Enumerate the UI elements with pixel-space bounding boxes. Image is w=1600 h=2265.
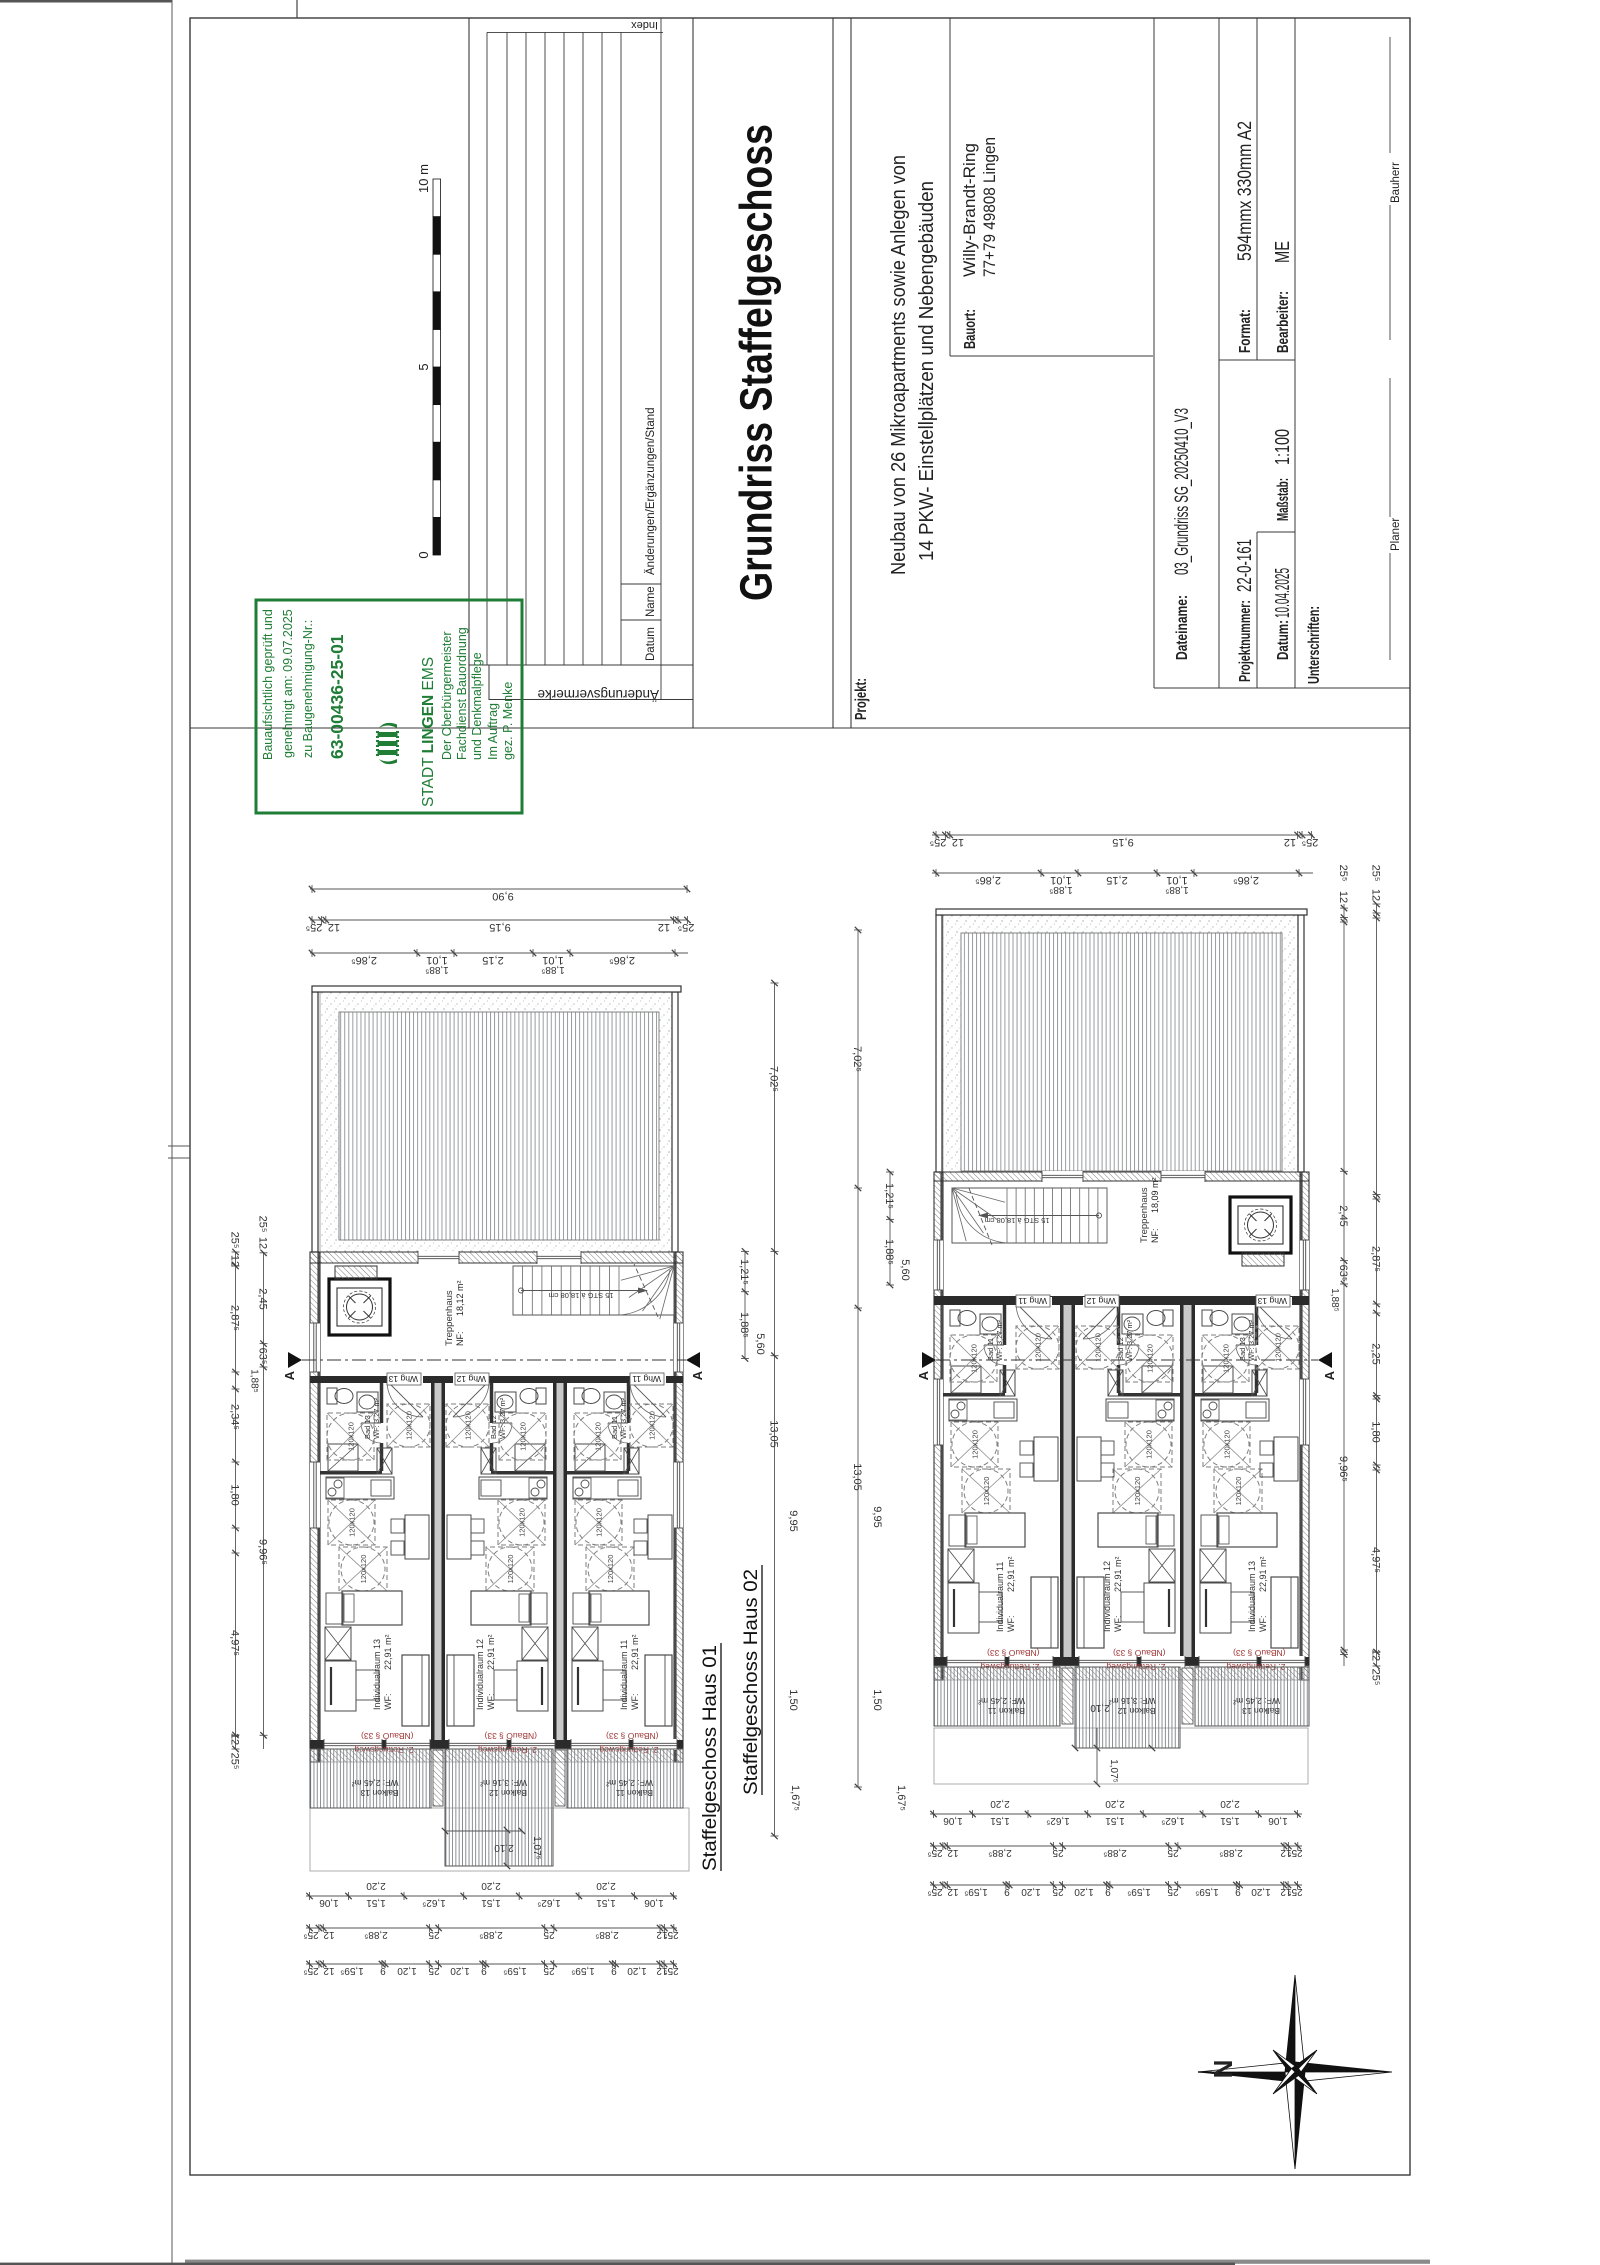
svg-text:WF: 3,16 m²: WF: 3,16 m²	[480, 1778, 527, 1788]
svg-text:Projektnummer:: Projektnummer:	[1237, 600, 1254, 682]
svg-text:120x120: 120x120	[506, 1555, 515, 1584]
svg-text:1,20: 1,20	[1021, 1886, 1041, 1897]
svg-text:2,20: 2,20	[596, 1880, 616, 1891]
svg-text:25: 25	[1052, 1886, 1064, 1897]
svg-text:WF:: WF:	[1258, 1616, 1268, 1633]
svg-text:Treppenhaus: Treppenhaus	[444, 1290, 455, 1346]
svg-text:25: 25	[1052, 1847, 1064, 1858]
svg-text:5: 5	[416, 363, 431, 370]
svg-text:1,59⁵: 1,59⁵	[503, 1965, 527, 1976]
svg-text:120x120: 120x120	[359, 1555, 368, 1584]
svg-text:Projekt:: Projekt:	[853, 678, 870, 720]
svg-text:Bad 11: Bad 11	[986, 1338, 995, 1361]
svg-text:25⁵: 25⁵	[930, 836, 947, 848]
svg-text:Bad 13: Bad 13	[363, 1415, 372, 1439]
svg-text:12: 12	[229, 1255, 241, 1267]
svg-text:1,51: 1,51	[596, 1897, 616, 1908]
svg-text:7,02⁵: 7,02⁵	[768, 1066, 780, 1092]
svg-text:1,06: 1,06	[644, 1897, 664, 1908]
svg-text:Individualraum 12: Individualraum 12	[1102, 1561, 1112, 1632]
svg-text:2,34⁵: 2,34⁵	[229, 1404, 241, 1430]
svg-text:120x120: 120x120	[1145, 1430, 1154, 1459]
svg-text:Fachdienst Bauordnung: Fachdienst Bauordnung	[455, 627, 469, 760]
svg-text:1,88⁵: 1,88⁵	[425, 964, 449, 975]
svg-text:WF: 3,27 m²: WF: 3,27 m²	[619, 1397, 628, 1439]
svg-text:N: N	[1208, 2060, 1238, 2079]
svg-text:1:100: 1:100	[1272, 429, 1294, 465]
svg-text:25⁵: 25⁵	[1370, 865, 1382, 882]
svg-text:120x120: 120x120	[594, 1422, 603, 1451]
svg-text:Individualraum 11: Individualraum 11	[619, 1640, 629, 1710]
svg-text:12: 12	[658, 921, 670, 933]
svg-text:22,91 m²: 22,91 m²	[486, 1634, 496, 1670]
svg-text:25⁵: 25⁵	[1337, 865, 1349, 882]
svg-text:2,10: 2,10	[494, 1842, 514, 1853]
svg-text:120x120: 120x120	[1133, 1477, 1142, 1506]
svg-text:Bad 12: Bad 12	[1116, 1337, 1125, 1361]
svg-text:25⁵: 25⁵	[678, 921, 695, 933]
svg-text:WF:: WF:	[383, 1694, 393, 1711]
svg-text:2,87⁵: 2,87⁵	[1370, 1246, 1382, 1272]
svg-text:1,51: 1,51	[366, 1897, 386, 1908]
svg-text:2,20: 2,20	[990, 1798, 1010, 1809]
svg-text:2,88⁵: 2,88⁵	[988, 1847, 1012, 1858]
svg-text:9: 9	[611, 1965, 617, 1976]
svg-text:120x120: 120x120	[519, 1422, 528, 1451]
svg-text:12: 12	[947, 1886, 959, 1897]
svg-text:1,06: 1,06	[943, 1815, 963, 1826]
svg-text:1,62⁵: 1,62⁵	[1046, 1815, 1070, 1826]
svg-text:13,05: 13,05	[851, 1463, 863, 1491]
svg-text:Balkon 13: Balkon 13	[1242, 1706, 1280, 1716]
svg-text:63-00436-25-01: 63-00436-25-01	[327, 634, 347, 759]
svg-text:1,20: 1,20	[627, 1965, 647, 1976]
svg-text:2,45: 2,45	[1337, 1205, 1349, 1226]
svg-text:(NBauO § 33): (NBauO § 33)	[606, 1731, 659, 1741]
svg-text:1,67⁵: 1,67⁵	[895, 1785, 907, 1811]
svg-text:1,59⁵: 1,59⁵	[571, 1965, 595, 1976]
svg-text:5,60: 5,60	[899, 1259, 911, 1280]
svg-text:2,88⁵: 2,88⁵	[1103, 1847, 1127, 1858]
svg-text:120x120: 120x120	[518, 1508, 527, 1537]
svg-text:gez. P. Menke: gez. P. Menke	[501, 682, 515, 760]
svg-text:120x120: 120x120	[1234, 1477, 1243, 1506]
svg-text:1,88⁵: 1,88⁵	[1165, 884, 1189, 895]
svg-text:10 m: 10 m	[416, 164, 431, 193]
svg-text:13,05: 13,05	[768, 1420, 780, 1448]
svg-text:Whg 13: Whg 13	[388, 1374, 418, 1384]
svg-text:A: A	[916, 1370, 931, 1380]
svg-text:594mmx 330mm A2: 594mmx 330mm A2	[1235, 121, 1256, 261]
svg-text:Balkon 12: Balkon 12	[489, 1788, 527, 1798]
svg-text:STADT LINGEN EMS: STADT LINGEN EMS	[420, 657, 437, 807]
svg-text:25⁵: 25⁵	[303, 1929, 318, 1940]
svg-text:1,21⁵: 1,21⁵	[738, 1259, 750, 1285]
svg-text:WF: 2,45 m²: WF: 2,45 m²	[1233, 1696, 1280, 1706]
svg-text:1,88⁵: 1,88⁵	[1329, 1288, 1340, 1312]
svg-text:Balkon 13: Balkon 13	[360, 1788, 398, 1798]
svg-text:25: 25	[428, 1929, 440, 1940]
svg-text:Neubau von 26 Mikroapartments: Neubau von 26 Mikroapartments sowie Anle…	[888, 155, 910, 575]
svg-text:Treppenhaus: Treppenhaus	[1139, 1187, 1150, 1243]
svg-text:Balkon 11: Balkon 11	[988, 1706, 1025, 1716]
svg-text:2,86⁵: 2,86⁵	[351, 954, 377, 966]
svg-text:9,15: 9,15	[489, 921, 510, 933]
svg-text:1,62⁵: 1,62⁵	[537, 1897, 561, 1908]
svg-text:1,20: 1,20	[1251, 1886, 1271, 1897]
svg-text:15 STG à 18,08 cm: 15 STG à 18,08 cm	[548, 1291, 613, 1300]
svg-text:Balkon 12: Balkon 12	[1117, 1706, 1155, 1716]
svg-text:9: 9	[1004, 1886, 1010, 1897]
svg-text:10.04.2025: 10.04.2025	[1272, 568, 1294, 618]
svg-text:12: 12	[323, 1965, 335, 1976]
svg-text:Bad 12: Bad 12	[489, 1415, 498, 1439]
svg-text:9,96⁵: 9,96⁵	[1337, 1456, 1349, 1482]
svg-text:Datum: Datum	[645, 627, 657, 661]
svg-text:63⁵: 63⁵	[1337, 1265, 1349, 1282]
svg-text:WF: 2,45 m²: WF: 2,45 m²	[978, 1696, 1025, 1706]
svg-text:1,67⁵: 1,67⁵	[789, 1785, 801, 1811]
svg-text:WF:: WF:	[630, 1694, 640, 1711]
svg-text:2,15: 2,15	[482, 954, 503, 966]
svg-text:1,88⁵: 1,88⁵	[738, 1312, 750, 1338]
svg-text:25⁵: 25⁵	[1370, 1669, 1382, 1686]
svg-text:1,50: 1,50	[871, 1689, 883, 1710]
svg-text:120x120: 120x120	[1222, 1344, 1231, 1373]
svg-text:25: 25	[543, 1929, 555, 1940]
svg-text:2,88⁵: 2,88⁵	[1219, 1847, 1243, 1858]
svg-text:2,86⁵: 2,86⁵	[975, 874, 1001, 886]
svg-text:Individualraum 13: Individualraum 13	[372, 1639, 382, 1710]
svg-text:(NBauO § 33): (NBauO § 33)	[1233, 1648, 1286, 1658]
svg-text:9: 9	[1105, 1886, 1111, 1897]
svg-text:03_Grundriss SG_20250410_V3: 03_Grundriss SG_20250410_V3	[1172, 408, 1193, 575]
svg-text:22-0-161: 22-0-161	[1234, 539, 1256, 592]
svg-text:WF: 3,16 m²: WF: 3,16 m²	[1109, 1696, 1156, 1706]
svg-text:9,95: 9,95	[787, 1510, 799, 1531]
svg-text:(NBauO § 33): (NBauO § 33)	[987, 1648, 1040, 1658]
svg-text:12: 12	[1284, 836, 1296, 848]
svg-text:WF: 2,45 m²: WF: 2,45 m²	[352, 1778, 399, 1788]
svg-text:12: 12	[229, 1733, 241, 1745]
svg-text:1,59⁵: 1,59⁵	[964, 1886, 988, 1897]
svg-text:25⁵: 25⁵	[1287, 1847, 1302, 1858]
svg-text:25⁵: 25⁵	[303, 1965, 318, 1976]
svg-text:1,88⁵: 1,88⁵	[541, 964, 565, 975]
svg-text:2,10: 2,10	[1090, 1702, 1110, 1713]
svg-text:1,51: 1,51	[481, 1897, 501, 1908]
svg-text:63⁵: 63⁵	[257, 1348, 269, 1365]
svg-text:1,51: 1,51	[1220, 1815, 1240, 1826]
svg-text:9: 9	[380, 1965, 386, 1976]
svg-text:22,91 m²: 22,91 m²	[630, 1634, 640, 1670]
svg-text:25⁵: 25⁵	[1287, 1886, 1302, 1897]
svg-text:Dateiname:: Dateiname:	[1174, 595, 1191, 660]
svg-text:Bauaufsichtlich geprüft und: Bauaufsichtlich geprüft und	[261, 609, 275, 760]
svg-text:9: 9	[1235, 1886, 1241, 1897]
svg-text:12: 12	[1370, 889, 1382, 901]
svg-text:Grundriss Staffelgeschoss: Grundriss Staffelgeschoss	[731, 124, 782, 601]
svg-text:25⁵: 25⁵	[927, 1847, 942, 1858]
svg-text:1,80: 1,80	[1370, 1421, 1382, 1442]
svg-text:2,20: 2,20	[1105, 1798, 1125, 1809]
svg-text:14 PKW- Einstellplätzen und Ne: 14 PKW- Einstellplätzen und Nebengebäude…	[916, 181, 938, 561]
svg-text:WF:: WF:	[1006, 1616, 1016, 1633]
svg-text:(NBauO § 33): (NBauO § 33)	[1113, 1648, 1166, 1658]
svg-text:Format:: Format:	[1237, 309, 1254, 353]
svg-text:Bauherr: Bauherr	[1390, 162, 1402, 203]
svg-text:2,25: 2,25	[1370, 1343, 1382, 1364]
svg-text:1,06: 1,06	[1268, 1815, 1288, 1826]
svg-text:WF:: WF:	[1113, 1616, 1123, 1633]
svg-text:Name: Name	[645, 586, 657, 617]
svg-text:4,97⁵: 4,97⁵	[229, 1630, 241, 1656]
svg-text:120x120: 120x120	[1146, 1344, 1155, 1373]
svg-text:WF: 3,27 m²: WF: 3,27 m²	[1125, 1319, 1134, 1361]
svg-text:Planer: Planer	[1390, 518, 1402, 551]
svg-text:5,60: 5,60	[754, 1333, 766, 1354]
svg-text:12: 12	[947, 1847, 959, 1858]
svg-text:0: 0	[416, 551, 431, 558]
svg-text:12: 12	[323, 1929, 335, 1940]
svg-text:25: 25	[428, 1965, 440, 1976]
svg-text:2,20: 2,20	[1220, 1798, 1240, 1809]
svg-text:WF: 3,27 m²: WF: 3,27 m²	[995, 1319, 1004, 1361]
svg-text:25⁵: 25⁵	[927, 1886, 942, 1897]
svg-text:1,07⁵: 1,07⁵	[531, 1836, 542, 1860]
svg-text:120x120: 120x120	[971, 1430, 980, 1459]
svg-text:120x120: 120x120	[1223, 1430, 1232, 1459]
svg-text:1,59⁵: 1,59⁵	[1195, 1886, 1219, 1897]
svg-text:1,20: 1,20	[1074, 1886, 1094, 1897]
svg-text:25⁵: 25⁵	[663, 1929, 678, 1940]
svg-text:25: 25	[1167, 1886, 1179, 1897]
svg-text:Der Oberbürgermeister: Der Oberbürgermeister	[440, 631, 454, 760]
svg-text:1,20: 1,20	[450, 1965, 470, 1976]
svg-text:1,62⁵: 1,62⁵	[422, 1897, 446, 1908]
svg-text:25: 25	[1167, 1847, 1179, 1858]
svg-text:1,06: 1,06	[319, 1897, 339, 1908]
svg-text:Unterschriften:: Unterschriften:	[1306, 606, 1323, 684]
svg-text:9: 9	[481, 1965, 487, 1976]
svg-text:2,86⁵: 2,86⁵	[609, 954, 635, 966]
svg-text:1,07⁵: 1,07⁵	[1108, 1759, 1119, 1783]
svg-text:WF: 2,45 m²: WF: 2,45 m²	[606, 1778, 653, 1788]
svg-text:9,95: 9,95	[871, 1506, 883, 1527]
svg-text:25⁵: 25⁵	[306, 921, 323, 933]
svg-text:12: 12	[1370, 1649, 1382, 1661]
svg-text:Maßstab:: Maßstab:	[1275, 478, 1292, 521]
svg-text:120x120: 120x120	[970, 1344, 979, 1373]
svg-text:1,51: 1,51	[990, 1815, 1010, 1826]
svg-text:18,12 m²: 18,12 m²	[455, 1280, 465, 1316]
svg-text:9,15: 9,15	[1112, 836, 1133, 848]
svg-text:9,96⁵: 9,96⁵	[257, 1539, 269, 1565]
svg-text:WF:: WF:	[486, 1694, 496, 1711]
svg-text:1,50: 1,50	[787, 1689, 799, 1710]
svg-text:1,62⁵: 1,62⁵	[1161, 1815, 1185, 1826]
svg-text:WF: 3,27 m²: WF: 3,27 m²	[498, 1397, 507, 1439]
svg-text:120x120: 120x120	[606, 1555, 615, 1584]
svg-text:1,21⁵: 1,21⁵	[883, 1183, 895, 1209]
svg-text:25⁵: 25⁵	[229, 1232, 241, 1249]
svg-text:Datum:: Datum:	[1275, 620, 1292, 660]
svg-text:2,87⁵: 2,87⁵	[229, 1305, 241, 1331]
svg-text:A: A	[1322, 1370, 1337, 1380]
svg-text:1,88⁵: 1,88⁵	[249, 1369, 260, 1393]
svg-text:Willy-Brandt-Ring: Willy-Brandt-Ring	[960, 143, 979, 277]
svg-text:1,20: 1,20	[397, 1965, 417, 1976]
svg-text:25⁵: 25⁵	[257, 1216, 269, 1233]
svg-text:15 STG à 18,08 cm: 15 STG à 18,08 cm	[984, 1216, 1049, 1225]
svg-text:ME: ME	[1272, 241, 1294, 263]
svg-text:Balkon 11: Balkon 11	[616, 1788, 653, 1798]
svg-text:Staffelgeschoss Haus 02: Staffelgeschoss Haus 02	[740, 1569, 762, 1795]
svg-text:(NBauO § 33): (NBauO § 33)	[484, 1731, 537, 1741]
svg-text:Bad 13: Bad 13	[1238, 1337, 1247, 1361]
svg-text:2,88⁵: 2,88⁵	[364, 1929, 388, 1940]
svg-text:22,91 m²: 22,91 m²	[1113, 1556, 1123, 1592]
svg-text:9,90: 9,90	[492, 890, 513, 902]
svg-text:Whg 11: Whg 11	[632, 1374, 661, 1384]
svg-text:WF: 3,27 m²: WF: 3,27 m²	[1247, 1319, 1256, 1361]
svg-text:A: A	[690, 1370, 705, 1380]
svg-text:genehmigt am: 09.07.2025: genehmigt am: 09.07.2025	[281, 609, 295, 758]
svg-text:25: 25	[543, 1965, 555, 1976]
svg-text:Individualraum 13: Individualraum 13	[1247, 1561, 1257, 1632]
svg-text:25⁵: 25⁵	[229, 1753, 241, 1770]
svg-text:Im Auftrag: Im Auftrag	[486, 703, 500, 760]
svg-text:und Denkmalpflege: und Denkmalpflege	[470, 652, 484, 760]
svg-text:2,20: 2,20	[366, 1880, 386, 1891]
svg-text:Bauort:: Bauort:	[962, 309, 979, 349]
svg-text:Individualraum 12: Individualraum 12	[475, 1639, 485, 1710]
svg-text:120x120: 120x120	[347, 1422, 356, 1451]
svg-text:120x120: 120x120	[982, 1477, 991, 1506]
svg-text:Whg 13: Whg 13	[1257, 1296, 1287, 1306]
svg-text:2,88⁵: 2,88⁵	[595, 1929, 619, 1940]
svg-text:120x120: 120x120	[348, 1508, 357, 1537]
svg-text:25⁵: 25⁵	[1302, 836, 1319, 848]
svg-text:12: 12	[952, 836, 964, 848]
svg-text:NF:: NF:	[1150, 1229, 1160, 1244]
svg-text:1,59⁵: 1,59⁵	[340, 1965, 364, 1976]
svg-text:A: A	[282, 1370, 297, 1380]
svg-text:1,80: 1,80	[229, 1484, 241, 1505]
svg-text:Änderungsvermerke: Änderungsvermerke	[537, 687, 659, 702]
svg-text:Bearbeiter:: Bearbeiter:	[1275, 291, 1292, 353]
svg-text:2,88⁵: 2,88⁵	[479, 1929, 503, 1940]
svg-text:2,45: 2,45	[257, 1288, 269, 1309]
svg-text:22,91 m²: 22,91 m²	[1258, 1556, 1268, 1592]
svg-text:77+79 49808 Lingen: 77+79 49808 Lingen	[980, 137, 999, 277]
svg-text:zu Baugenehmigung-Nr.:: zu Baugenehmigung-Nr.:	[301, 620, 315, 758]
svg-text:22,91 m²: 22,91 m²	[383, 1634, 393, 1670]
svg-text:WF: 3,27 m²: WF: 3,27 m²	[372, 1397, 381, 1439]
svg-text:1,88⁵: 1,88⁵	[883, 1239, 895, 1265]
svg-text:Änderungen/Ergänzungen/Stand: Änderungen/Ergänzungen/Stand	[645, 407, 657, 575]
svg-text:2,20: 2,20	[481, 1880, 501, 1891]
svg-text:Index: Index	[631, 19, 658, 31]
svg-text:1,88⁵: 1,88⁵	[1049, 884, 1073, 895]
svg-text:Whg 11: Whg 11	[1018, 1296, 1047, 1306]
svg-text:1,59⁵: 1,59⁵	[1127, 1886, 1151, 1897]
svg-text:12: 12	[328, 921, 340, 933]
svg-text:Bad 11: Bad 11	[610, 1416, 619, 1439]
svg-text:25⁵: 25⁵	[663, 1965, 678, 1976]
svg-text:22,91 m²: 22,91 m²	[1006, 1556, 1016, 1592]
svg-text:2,15: 2,15	[1106, 874, 1127, 886]
svg-text:2,86⁵: 2,86⁵	[1233, 874, 1259, 886]
svg-text:Whg 12: Whg 12	[1086, 1296, 1116, 1306]
svg-text:120x120: 120x120	[595, 1508, 604, 1537]
svg-text:18,09 m²: 18,09 m²	[1150, 1177, 1160, 1213]
svg-text:NF:: NF:	[455, 1332, 465, 1347]
svg-text:4,97⁵: 4,97⁵	[1370, 1547, 1382, 1573]
svg-text:1,51: 1,51	[1105, 1815, 1125, 1826]
svg-text:12: 12	[1337, 891, 1349, 903]
svg-text:(NBauO § 33): (NBauO § 33)	[361, 1731, 414, 1741]
svg-text:Whg 12: Whg 12	[456, 1374, 486, 1384]
svg-text:12: 12	[257, 1237, 269, 1249]
svg-text:Staffelgeschoss Haus 01: Staffelgeschoss Haus 01	[699, 1645, 721, 1871]
svg-text:7,02⁵: 7,02⁵	[851, 1046, 863, 1072]
svg-text:Individualraum 11: Individualraum 11	[995, 1562, 1005, 1632]
